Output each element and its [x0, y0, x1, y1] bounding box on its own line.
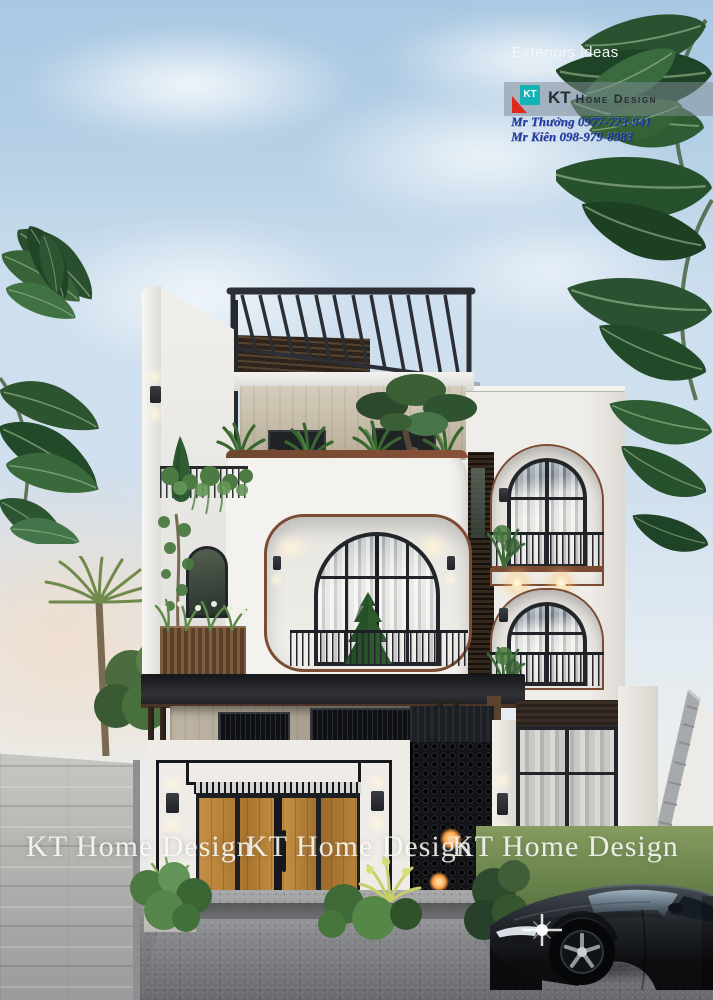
- niche-sconce: [273, 556, 281, 570]
- tagline-text: Exteriors ideas: [512, 44, 619, 61]
- sconce-glow: [492, 770, 513, 792]
- tropical-leaves: [0, 224, 112, 342]
- balcony-plant: [486, 494, 526, 570]
- fin-wall-sconce: [150, 386, 161, 403]
- design-by-text: Design by: [512, 66, 556, 77]
- sconce-glow: [367, 773, 388, 791]
- balcony-light: [510, 576, 524, 590]
- screen-wall-header: [410, 706, 494, 746]
- tropical-leaves: [0, 368, 104, 544]
- sconce-glow: [269, 572, 284, 587]
- contact-phone-1: Mr Thưởng 0977-723-941: [511, 114, 651, 130]
- channel-window: [471, 468, 485, 538]
- brand-home-design: Home Design: [576, 92, 657, 106]
- watermark: KT Home Design: [26, 830, 253, 864]
- ground-floor-window: [516, 726, 618, 830]
- brand-name: KT Home Design: [548, 88, 657, 108]
- niche-sconce: [447, 556, 455, 570]
- wood-clad-wall: [516, 700, 618, 728]
- pillar-sconce: [497, 793, 508, 815]
- pillar-sconce: [166, 793, 179, 813]
- center-balcony-railing: [290, 630, 468, 666]
- sconce-glow: [162, 775, 183, 793]
- sconce-glow: [145, 368, 165, 386]
- pillar-sconce: [371, 791, 384, 811]
- contact-phone-2: Mr Kiên 098-979-8983: [511, 129, 633, 145]
- brand-kt: KT: [548, 88, 571, 108]
- planter-flowers: [152, 592, 252, 632]
- architectural-render: Exteriors ideas Design by KT KT Home Des…: [0, 0, 713, 1000]
- entry-canopy: [141, 674, 525, 706]
- sconce-glow: [443, 572, 458, 587]
- kt-logo-icon: KT: [512, 85, 540, 113]
- gate-trim: [156, 760, 392, 763]
- screen-light: [429, 872, 449, 892]
- cloud: [20, 25, 360, 145]
- brown-coping: [226, 450, 468, 458]
- watermark: KT Home Design: [452, 830, 679, 864]
- logo-teal-square: KT: [520, 85, 540, 105]
- black-sedan-car: [488, 848, 713, 996]
- watermark: KT Home Design: [246, 830, 473, 864]
